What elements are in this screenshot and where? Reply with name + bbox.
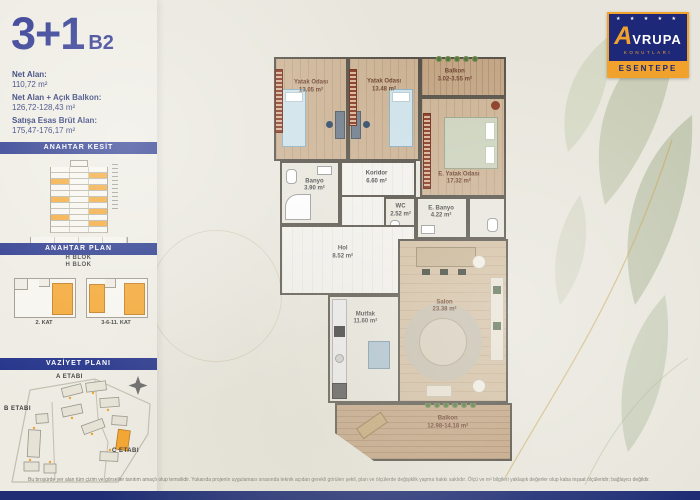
- planter-plants: [436, 56, 478, 62]
- key-plan-floor-label: 2. KAT: [14, 320, 74, 326]
- chair: [440, 269, 448, 275]
- room-bedroom-2: Yatak Odası13.48 m²: [348, 57, 420, 161]
- area-stats: Net Alan: 110,72 m² Net Alan + Açık Balk…: [12, 66, 152, 135]
- unit-title: 3+1B2: [11, 8, 114, 60]
- key-plan-kat-3-11: [86, 278, 148, 318]
- floor-plan: Yatak Odası13.05 m² Yatak Odası13.48 m² …: [258, 55, 516, 465]
- kitchen-sink: [335, 354, 344, 363]
- compass-icon: [129, 376, 148, 395]
- highlighted-unit: [124, 283, 145, 315]
- etap-b-label: B ETABI: [4, 406, 31, 412]
- radiator: [423, 113, 431, 189]
- brochure-page: 3+1B2 Net Alan: 110,72 m² Net Alan + Açı…: [0, 0, 700, 500]
- room-label: Koridor6.60 m²: [366, 171, 388, 186]
- stat-value: 110,72 m²: [12, 80, 152, 89]
- room-living-room: Salon23.38 m²: [398, 239, 508, 403]
- key-plan-notch: [105, 279, 116, 288]
- sink: [421, 225, 435, 234]
- room-kitchen: Mutfak11.60 m²: [328, 295, 400, 403]
- avrupa-konutlari-logo: ★ ★ ★ ★ ★ AVRUPA KONUTLARI ESENTEPE: [607, 12, 689, 78]
- rug: [404, 303, 482, 381]
- chair: [326, 121, 333, 128]
- plant-pot: [491, 101, 500, 110]
- stat-label: Net Alan + Açık Balkon:: [12, 93, 152, 102]
- room-label: Hol8.52 m²: [332, 246, 353, 261]
- stat-value: 126,72-128,43 m²: [12, 103, 152, 112]
- pillow: [485, 122, 495, 140]
- etap-c-label: C ETABI: [112, 448, 139, 454]
- logo-subtitle: KONUTLARI: [609, 50, 687, 55]
- info-sidebar: 3+1B2 Net Alan: 110,72 m² Net Alan + Açı…: [0, 0, 157, 500]
- toilet: [286, 169, 297, 184]
- kitchen-table: [368, 341, 390, 369]
- chair: [363, 121, 370, 128]
- key-plan-kat-2: [14, 278, 76, 318]
- room-label: E. Yatak Odası17.32 m²: [438, 171, 479, 186]
- stat-label: Satışa Esas Brüt Alan:: [12, 116, 152, 125]
- site-plan-map: [0, 372, 157, 488]
- desk: [335, 111, 345, 139]
- pillow: [392, 92, 410, 102]
- shower: [285, 194, 311, 220]
- bed: [444, 117, 498, 169]
- room-bedroom-1: Yatak Odası13.05 m²: [274, 57, 348, 161]
- floor-ticks: [112, 164, 118, 209]
- room-label: Banyo3.90 m²: [304, 178, 325, 193]
- room-balcony-bottom: Balkon12.98-14.18 m²: [335, 403, 512, 461]
- room-master-bedroom: E. Yatak Odası17.32 m²: [420, 97, 506, 197]
- project-name-label: ESENTEPE: [609, 61, 687, 76]
- fridge: [332, 383, 347, 399]
- lounge-chair: [356, 412, 388, 440]
- room-label: Yatak Odası13.05 m²: [294, 80, 328, 95]
- sofa: [490, 277, 504, 361]
- room-corridor: Koridor6.60 m²: [340, 161, 416, 197]
- stat-label: Net Alan:: [12, 70, 152, 79]
- pouf: [472, 379, 486, 393]
- logo-stars-icon: ★ ★ ★ ★ ★: [609, 16, 687, 22]
- logo-letter-a: A: [614, 22, 632, 50]
- cushion: [493, 322, 501, 330]
- building-tower: [50, 160, 108, 233]
- room-master-bathroom: E. Banyo4.22 m²: [416, 197, 468, 239]
- stove: [334, 326, 345, 337]
- section-bar-anahtar-kesit: ANAHTAR KESİT: [0, 142, 157, 154]
- room-label: WC2.52 m²: [390, 204, 411, 219]
- key-plan-block-label: H BLOK: [0, 262, 157, 268]
- room-balcony-top: Balkon3.02-3.55 m²: [420, 57, 506, 97]
- site-plan: A ETABI B ETABI C ETABI: [0, 372, 157, 488]
- chair: [422, 269, 430, 275]
- pillow: [485, 146, 495, 164]
- section-bar-anahtar-plan: ANAHTAR PLAN: [0, 243, 157, 255]
- bed: [389, 89, 413, 147]
- logo-emblem: ★ ★ ★ ★ ★ AVRUPA KONUTLARI: [609, 14, 687, 61]
- highlighted-unit: [52, 283, 73, 315]
- coffee-table: [419, 318, 467, 366]
- room-label: Salon23.38 m²: [433, 299, 457, 314]
- stat-value: 175,47-176,17 m²: [12, 126, 152, 135]
- radiator: [349, 69, 357, 126]
- bottom-accent-bar: [0, 491, 700, 500]
- room-label: Balkon12.98-14.18 m²: [427, 416, 468, 431]
- room-label: Mutfak11.60 m²: [354, 311, 378, 326]
- pouf: [472, 255, 486, 269]
- room-label: E. Banyo4.22 m²: [428, 205, 454, 220]
- armchair: [426, 385, 452, 397]
- dining-table: [416, 247, 476, 267]
- section-bar-vaziyet-plani: VAZİYET PLANI: [0, 358, 157, 370]
- key-plan-floor-label: 3-6-11. KAT: [86, 320, 146, 326]
- cushion: [493, 286, 501, 294]
- unit-variant-label: B2: [88, 32, 114, 54]
- room-bath-annex: [468, 197, 506, 239]
- room-hall-upper: [340, 195, 386, 227]
- etap-a-label: A ETABI: [56, 374, 83, 380]
- bed: [282, 89, 306, 147]
- unit-type-label: 3+1: [11, 8, 84, 59]
- key-plan-notch: [15, 279, 28, 290]
- key-plan-notch: [39, 279, 50, 287]
- building-roof: [70, 160, 88, 167]
- block-label: H BLOK: [0, 255, 157, 261]
- sink: [317, 166, 332, 175]
- highlighted-unit: [89, 284, 105, 313]
- toilet: [487, 218, 498, 232]
- room-hall: Hol8.52 m²: [280, 225, 416, 295]
- radiator: [275, 69, 283, 133]
- room-label: Balkon3.02-3.55 m²: [438, 69, 472, 84]
- chair: [458, 269, 466, 275]
- room-bathroom: Banyo3.90 m²: [280, 161, 340, 225]
- logo-brand-text: VRUPA: [632, 32, 682, 47]
- room-label: Yatak Odası13.48 m²: [367, 79, 401, 94]
- legal-disclaimer: Bu broşürde yer alan tüm çizim ve görsel…: [28, 477, 688, 484]
